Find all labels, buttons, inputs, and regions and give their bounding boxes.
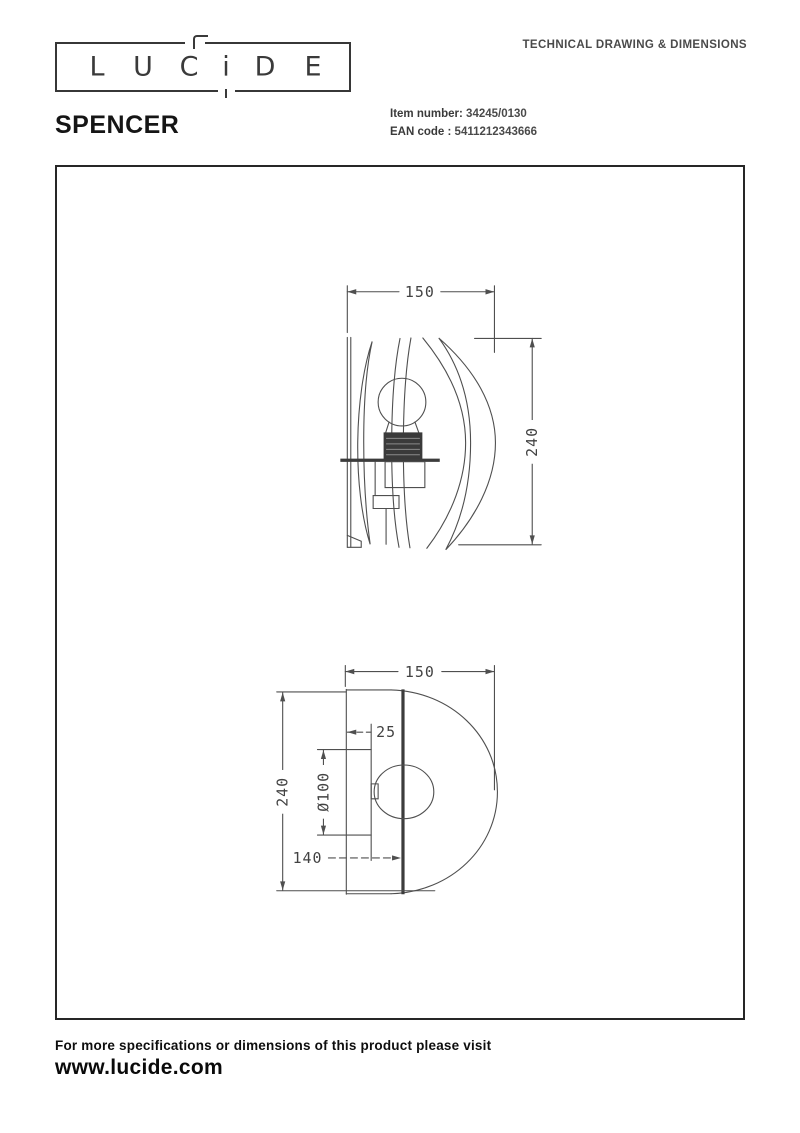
front-view-shade-outline bbox=[346, 689, 497, 894]
document-title: TECHNICAL DRAWING & DIMENSIONS bbox=[522, 39, 747, 51]
side-view-bulb bbox=[340, 378, 439, 544]
side-view-drawing: 150 240 bbox=[340, 283, 541, 550]
technical-drawing-canvas: 150 240 bbox=[57, 167, 743, 1018]
front-view-diameter-dimension: Ø100 bbox=[314, 750, 371, 836]
logo-letter-d: D bbox=[255, 52, 276, 83]
ean-code-row: EAN code : 5411212343666 bbox=[390, 124, 537, 142]
ean-code-label: EAN code : bbox=[390, 126, 451, 138]
side-view-width-label: 150 bbox=[405, 283, 435, 301]
item-number-row: Item number: 34245/0130 bbox=[390, 106, 537, 124]
footer-website: www.lucide.com bbox=[55, 1056, 491, 1080]
footer: For more specifications or dimensions of… bbox=[55, 1038, 491, 1080]
front-view-center-label: 140 bbox=[293, 849, 323, 867]
lucide-logo: L U C i D E bbox=[55, 42, 351, 92]
logo-letter-c: C bbox=[180, 52, 199, 83]
front-view-drawing: 150 bbox=[274, 663, 498, 894]
product-identifiers: Item number: 34245/0130 EAN code : 54112… bbox=[390, 106, 537, 141]
logo-i-descender bbox=[225, 89, 227, 98]
front-view-width-label: 150 bbox=[405, 663, 435, 681]
front-view-height-label: 240 bbox=[274, 777, 292, 807]
drawing-frame: 150 240 bbox=[55, 165, 745, 1020]
side-view-wall-plate bbox=[347, 337, 361, 547]
logo-letter-i: i bbox=[222, 52, 230, 83]
footer-note: For more specifications or dimensions of… bbox=[55, 1038, 491, 1053]
ean-code-value: 5411212343666 bbox=[455, 126, 538, 138]
spec-sheet: L U C i D E TECHNICAL DRAWING & DIMENSIO… bbox=[0, 0, 800, 1133]
side-view-height-label: 240 bbox=[523, 427, 541, 457]
side-view-shade-shells bbox=[358, 338, 496, 550]
product-name: SPENCER bbox=[55, 111, 179, 140]
logo-c-hook-icon bbox=[193, 35, 208, 49]
front-view-inset-label: 25 bbox=[376, 723, 396, 741]
front-view-inset-dimension: 25 bbox=[347, 723, 396, 860]
logo-letter-e: E bbox=[304, 52, 321, 83]
side-view-width-dimension: 150 bbox=[347, 283, 494, 352]
front-view-diameter-label: Ø100 bbox=[314, 772, 332, 812]
logo-letter-u: U bbox=[133, 52, 153, 83]
item-number-label: Item number: bbox=[390, 108, 463, 120]
item-number-value: 34245/0130 bbox=[466, 108, 527, 120]
logo-letter-l: L bbox=[89, 52, 104, 83]
